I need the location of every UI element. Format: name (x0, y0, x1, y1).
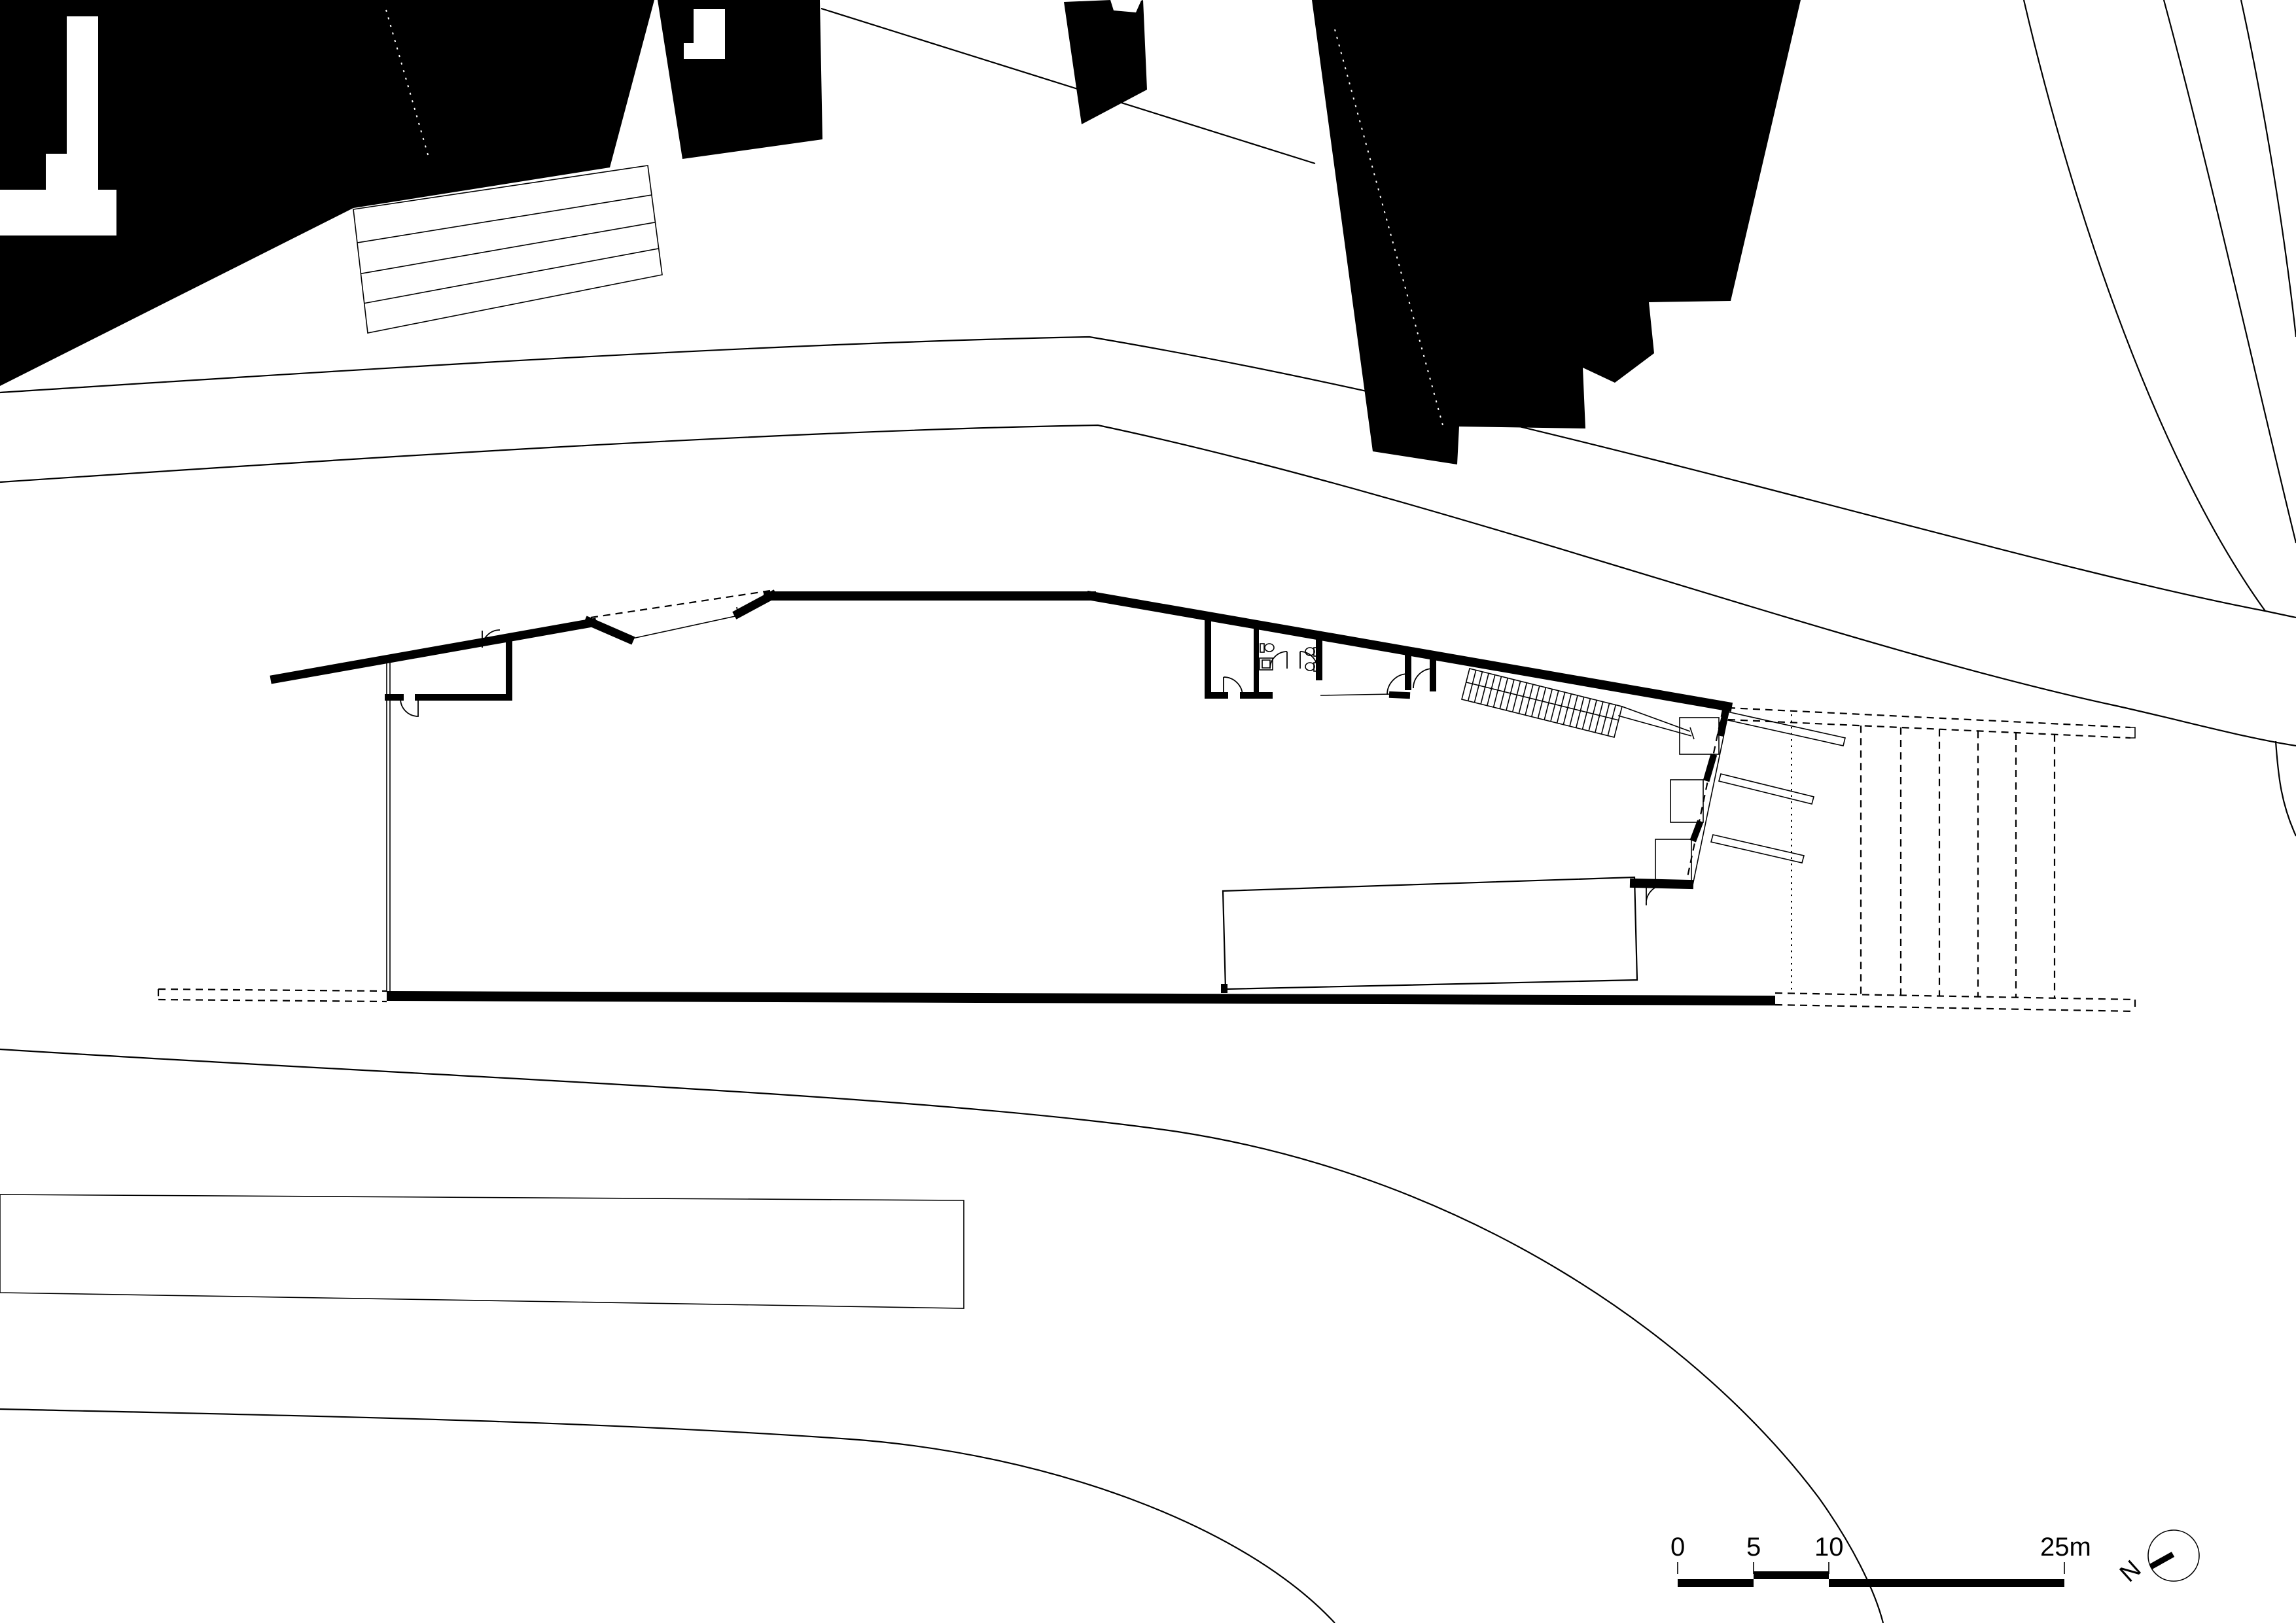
handrail-end-tick (1690, 727, 1694, 739)
wc-toilet-icon-1 (1260, 644, 1274, 652)
building-plan (158, 591, 1845, 1005)
road-curve-south-lower (0, 1409, 1335, 1623)
stair-tread (1557, 692, 1565, 723)
stair-tread (1582, 699, 1590, 729)
stair-tread (1576, 697, 1584, 728)
stage-corner-tick (1221, 984, 1227, 993)
stage-outline (1223, 877, 1637, 989)
stair-tread (1532, 686, 1540, 717)
parking-canopy-edge-lower (1728, 720, 2130, 738)
scale-label-0: 0 (1670, 1533, 1685, 1562)
stair-tread (1506, 680, 1514, 710)
parking-canopy-end-cap (2130, 727, 2135, 738)
road-behind-buildings (821, 9, 1315, 164)
road-network (0, 0, 2296, 1623)
stair-tread (1481, 673, 1489, 704)
scale-label-25m: 25m (2040, 1533, 2091, 1562)
terrace-strips (357, 195, 659, 304)
road-right-3 (2241, 0, 2296, 337)
stair-tread (1589, 700, 1597, 731)
stair-tread (1570, 695, 1578, 726)
road-curve-southwest (0, 1049, 1883, 1623)
scale-segment-10-25 (1829, 1579, 2064, 1587)
east-wall-line (1693, 708, 1729, 885)
stair-tread (1538, 688, 1546, 718)
east-wall-segment-2 (1707, 758, 1713, 778)
neighboring-buildings (0, 0, 1801, 464)
road-edge-upper (0, 337, 2296, 618)
site-plan-canvas: 0 5 10 25m N (0, 0, 2296, 1623)
scale-segment-0-5 (1678, 1579, 1754, 1587)
north-arrow-label: N (2115, 1555, 2147, 1588)
planter-bar-2 (1719, 774, 1814, 804)
terrace-strip-line-3 (364, 249, 659, 304)
stair-tread (1602, 703, 1610, 734)
building-footprint-north-b (1064, 0, 1147, 124)
entrance-recess-threshold (629, 607, 738, 639)
corridor-wall-stub (1392, 695, 1407, 695)
north-arrow-needle (2151, 1554, 2173, 1567)
vestibule-door-arc (400, 699, 418, 716)
display-box-3 (1655, 839, 1691, 881)
road-right-2 (2164, 0, 2296, 543)
stair-tread (1500, 678, 1508, 709)
podium-dashed-extension-west (158, 989, 387, 1002)
building-footprint-northeast (1312, 0, 1801, 464)
parking-canopy-edge-upper (1728, 708, 2130, 727)
wc-double-door-arcs (1270, 652, 1317, 669)
stair-tread (1525, 684, 1533, 715)
scale-label-5: 5 (1746, 1533, 1761, 1562)
stair-tread (1487, 675, 1495, 706)
stair-tread (1544, 689, 1552, 720)
building-footprint-north-a (658, 0, 822, 159)
north-wall-west-segment (275, 623, 592, 679)
stair-tread (1494, 676, 1502, 707)
scale-bar: 0 5 10 25m (1670, 1533, 2091, 1587)
scale-segment-5-10 (1754, 1571, 1829, 1579)
north-arrow: N (2115, 1530, 2199, 1588)
stair-tread (1474, 672, 1482, 703)
south-podium-edge (387, 991, 1775, 1005)
stair-tread (1468, 670, 1476, 701)
road-edge-lower (0, 425, 2296, 746)
stair-tread (1563, 694, 1571, 725)
southeast-door-wall (1634, 883, 1689, 884)
site-plan-page: 0 5 10 25m N (0, 0, 2296, 1623)
entrance-recess-west-jamb (589, 621, 629, 639)
stair-tread (1595, 702, 1603, 733)
display-box-2 (1670, 780, 1703, 822)
parking-south-band (1775, 993, 2135, 1011)
road-right-1 (2024, 0, 2265, 611)
corridor-step-line (1320, 694, 1392, 695)
east-wall-segment-3 (1694, 824, 1699, 838)
display-box-1 (1680, 718, 1719, 754)
stair-tread (1608, 705, 1616, 736)
planter-bar-1 (1725, 712, 1845, 746)
scale-label-10: 10 (1814, 1533, 1844, 1562)
lawn-strip-outline (0, 1195, 964, 1308)
stair-tread (1519, 683, 1527, 714)
stair-tread (1513, 681, 1521, 712)
parking-bay-lines (1861, 725, 2055, 998)
road-branch-curve (2276, 741, 2296, 836)
east-wall (1655, 708, 1845, 885)
terrace-strip-line-2 (361, 222, 655, 273)
planter-bar-3 (1711, 835, 1804, 863)
stair-tread (1551, 691, 1559, 722)
